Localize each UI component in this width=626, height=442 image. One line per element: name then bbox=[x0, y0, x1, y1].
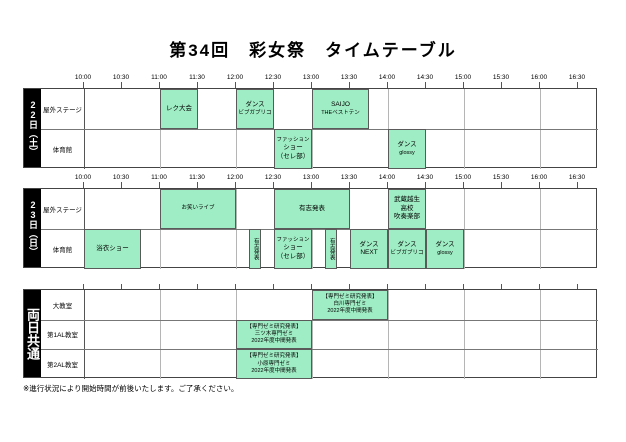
event-block: ダンスNEXT bbox=[350, 229, 388, 269]
event-block: ファッションショー（セレ部） bbox=[274, 229, 312, 269]
event-label-line: ビブガブリコ bbox=[238, 110, 271, 117]
row-label: 第1AL教室 bbox=[41, 320, 84, 350]
time-label: 14:30 bbox=[417, 74, 433, 81]
time-tick bbox=[273, 284, 274, 289]
time-tick bbox=[425, 284, 426, 289]
time-label: 15:00 bbox=[455, 74, 471, 81]
time-label: 10:30 bbox=[113, 174, 129, 181]
timetable-section: 22日（土）屋外ステージレク大会ダンスビブガブリコSAIJOTHEベストテン体育… bbox=[23, 88, 597, 168]
time-label: 15:30 bbox=[493, 74, 509, 81]
time-label: 13:30 bbox=[341, 74, 357, 81]
time-tick bbox=[387, 182, 388, 188]
time-tick bbox=[577, 182, 578, 188]
event-label-line: ダンス bbox=[245, 101, 264, 109]
event-label-line: ファッション bbox=[276, 237, 309, 244]
time-label: 14:30 bbox=[417, 174, 433, 181]
time-tick bbox=[83, 284, 84, 289]
time-label: 13:00 bbox=[303, 174, 319, 181]
event-block: 浴衣ショー bbox=[84, 229, 141, 269]
page-title: 第34回 彩女祭 タイムテーブル bbox=[0, 36, 626, 61]
time-label: 12:00 bbox=[227, 174, 243, 181]
event-block: 【専門ゼミ研究発表】三ツ木専門ゼミ2022年度中間発表 bbox=[236, 320, 312, 350]
time-tick bbox=[501, 284, 502, 289]
timetable-section: 23日（日）屋外ステージお笑いライブ有志発表武蔵越生高校吹奏楽部体育館浴衣ショー… bbox=[23, 188, 597, 268]
event-label-line: ショー bbox=[283, 144, 303, 152]
time-tick bbox=[463, 182, 464, 188]
event-label-line: 吹奏楽部 bbox=[394, 213, 420, 221]
day-bar: 22日（土） bbox=[24, 89, 41, 167]
time-label: 12:30 bbox=[265, 74, 281, 81]
time-tick bbox=[159, 82, 160, 88]
event-label-line: お笑いライブ bbox=[181, 205, 214, 212]
event-block: 有志発表 bbox=[249, 229, 262, 269]
time-tick bbox=[121, 182, 122, 188]
time-tick bbox=[425, 82, 426, 88]
hour-gridline bbox=[160, 290, 161, 379]
event-block: ダンスビブガブリコ bbox=[388, 229, 426, 269]
time-tick bbox=[539, 182, 540, 188]
row-divider bbox=[41, 320, 598, 321]
event-label-line: 有志発表 bbox=[299, 205, 325, 213]
event-block: ダンスglossy bbox=[426, 229, 464, 269]
event-block: お笑いライブ bbox=[160, 189, 236, 229]
event-label-line: 三ツ木専門ゼミ bbox=[255, 331, 294, 338]
time-tick bbox=[387, 284, 388, 289]
time-tick bbox=[235, 182, 236, 188]
day-bar-label: 両日共通 bbox=[26, 308, 39, 360]
time-tick bbox=[121, 82, 122, 88]
time-label: 13:30 bbox=[341, 174, 357, 181]
time-tick bbox=[387, 82, 388, 88]
time-label: 15:00 bbox=[455, 174, 471, 181]
time-tick bbox=[235, 284, 236, 289]
time-tick bbox=[539, 82, 540, 88]
event-label-line: 【専門ゼミ研究発表】 bbox=[246, 353, 301, 360]
event-label-line: NEXT bbox=[360, 249, 377, 257]
time-label: 16:00 bbox=[531, 174, 547, 181]
event-block: 有志発表 bbox=[274, 189, 350, 229]
event-block: 有志発表 bbox=[325, 229, 338, 269]
time-label: 11:00 bbox=[151, 174, 167, 181]
event-label-line: （セレ部） bbox=[277, 253, 310, 261]
day-bar-label: 22日（土） bbox=[28, 100, 37, 156]
time-label: 11:30 bbox=[189, 174, 205, 181]
day-bar: 23日（日） bbox=[24, 189, 41, 267]
time-tick bbox=[463, 82, 464, 88]
time-label: 16:30 bbox=[569, 74, 585, 81]
event-label-line: 高校 bbox=[401, 205, 414, 213]
event-label-line: 有志発表 bbox=[252, 238, 258, 260]
time-tick bbox=[197, 284, 198, 289]
time-label: 16:00 bbox=[531, 74, 547, 81]
event-label-line: ダンス bbox=[359, 241, 378, 249]
time-label: 11:30 bbox=[189, 74, 205, 81]
time-label: 11:00 bbox=[151, 74, 167, 81]
time-tick bbox=[311, 284, 312, 289]
event-block: 【専門ゼミ研究発表】白川専門ゼミ2022年度中間発表 bbox=[312, 290, 388, 320]
event-label-line: glossy bbox=[437, 250, 453, 257]
time-tick bbox=[577, 82, 578, 88]
event-label-line: 小原専門ゼミ bbox=[257, 361, 290, 368]
time-tick bbox=[197, 182, 198, 188]
time-tick bbox=[501, 182, 502, 188]
time-tick bbox=[311, 182, 312, 188]
event-label-line: glossy bbox=[399, 150, 415, 157]
time-label: 10:30 bbox=[113, 74, 129, 81]
event-label-line: THEベストテン bbox=[321, 110, 360, 117]
event-block: ファッションショー（セレ部） bbox=[274, 129, 312, 169]
time-tick bbox=[159, 182, 160, 188]
event-block: 【専門ゼミ研究発表】小原専門ゼミ2022年度中間発表 bbox=[236, 349, 312, 379]
event-label-line: 浴衣ショー bbox=[96, 245, 129, 253]
time-tick bbox=[349, 82, 350, 88]
event-label-line: 武蔵越生 bbox=[394, 196, 420, 204]
time-label: 14:00 bbox=[379, 74, 395, 81]
event-label-line: 有志発表 bbox=[328, 238, 334, 260]
row-label: 第2AL教室 bbox=[41, 349, 84, 379]
time-label: 14:00 bbox=[379, 174, 395, 181]
event-block: SAIJOTHEベストテン bbox=[312, 89, 369, 129]
time-label: 13:00 bbox=[303, 74, 319, 81]
time-tick bbox=[235, 82, 236, 88]
time-tick bbox=[197, 82, 198, 88]
time-tick bbox=[539, 284, 540, 289]
time-tick bbox=[349, 182, 350, 188]
time-label: 12:30 bbox=[265, 174, 281, 181]
time-tick bbox=[577, 284, 578, 289]
event-label-line: SAIJO bbox=[331, 101, 350, 109]
time-tick bbox=[273, 82, 274, 88]
time-tick bbox=[311, 82, 312, 88]
event-label-line: ファッション bbox=[276, 137, 309, 144]
footer-note: ※進行状況により開始時間が前後いたします。ご了承ください。 bbox=[23, 383, 238, 394]
hour-gridline bbox=[84, 290, 85, 379]
time-tick bbox=[463, 284, 464, 289]
row-divider bbox=[41, 129, 598, 130]
event-label-line: ショー bbox=[283, 244, 303, 252]
time-label: 12:00 bbox=[227, 74, 243, 81]
time-tick bbox=[159, 284, 160, 289]
event-label-line: （セレ部） bbox=[277, 153, 310, 161]
event-block: ダンスビブガブリコ bbox=[236, 89, 274, 129]
time-label: 10:00 bbox=[75, 74, 91, 81]
row-label: 屋外ステージ bbox=[41, 189, 84, 229]
day-bar: 両日共通 bbox=[24, 290, 41, 377]
event-label-line: 2022年度中間発表 bbox=[327, 308, 372, 315]
timetable-section: 両日共通大教室【専門ゼミ研究発表】白川専門ゼミ2022年度中間発表第1AL教室【… bbox=[23, 289, 597, 378]
event-label-line: 2022年度中間発表 bbox=[251, 368, 296, 375]
time-tick bbox=[349, 284, 350, 289]
event-block: ダンスglossy bbox=[388, 129, 426, 169]
event-block: 武蔵越生高校吹奏楽部 bbox=[388, 189, 426, 229]
row-label: 体育館 bbox=[41, 129, 84, 169]
time-label: 16:30 bbox=[569, 174, 585, 181]
time-label: 10:00 bbox=[75, 174, 91, 181]
time-tick bbox=[83, 82, 84, 88]
event-label-line: ダンス bbox=[397, 241, 416, 249]
row-label: 屋外ステージ bbox=[41, 89, 84, 129]
event-label-line: ビブガブリコ bbox=[390, 250, 423, 257]
hour-gridline bbox=[388, 290, 389, 379]
timetable-poster: 第34回 彩女祭 タイムテーブル 22日（土）屋外ステージレク大会ダンスビブガブ… bbox=[0, 0, 626, 442]
hour-gridline bbox=[464, 290, 465, 379]
event-label-line: ダンス bbox=[435, 241, 454, 249]
event-block: レク大会 bbox=[160, 89, 198, 129]
row-label: 体育館 bbox=[41, 229, 84, 269]
time-tick bbox=[83, 182, 84, 188]
time-tick bbox=[273, 182, 274, 188]
hour-gridline bbox=[540, 290, 541, 379]
time-label: 15:30 bbox=[493, 174, 509, 181]
time-tick bbox=[501, 82, 502, 88]
time-tick bbox=[121, 284, 122, 289]
day-bar-label: 23日（日） bbox=[28, 200, 37, 256]
row-label: 大教室 bbox=[41, 290, 84, 320]
event-label-line: ダンス bbox=[397, 141, 416, 149]
time-tick bbox=[425, 182, 426, 188]
row-divider bbox=[41, 349, 598, 350]
event-label-line: 【専門ゼミ研究発表】 bbox=[246, 324, 301, 331]
event-label-line: レク大会 bbox=[166, 105, 192, 113]
event-label-line: 2022年度中間発表 bbox=[251, 338, 296, 345]
